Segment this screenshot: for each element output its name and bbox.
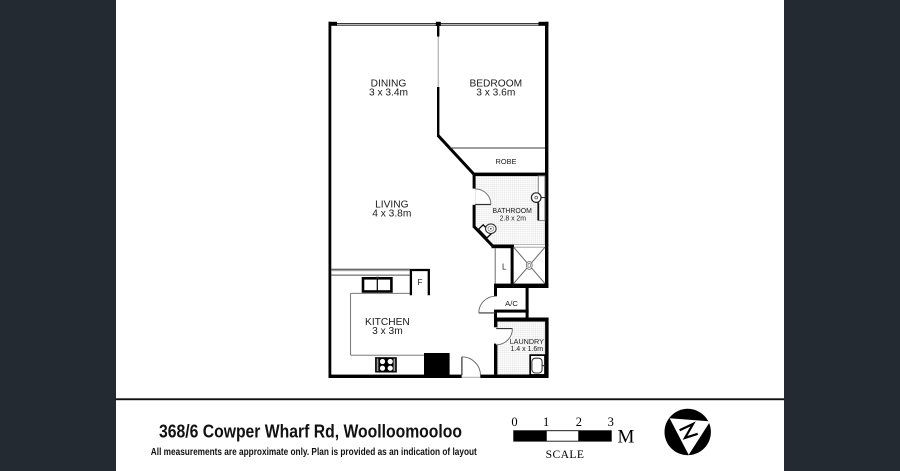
svg-text:F: F (417, 278, 422, 287)
svg-text:ROBE: ROBE (496, 157, 517, 166)
svg-text:All measurements are approxima: All measurements are approximate only. P… (151, 447, 478, 458)
svg-text:A/C: A/C (505, 299, 518, 308)
svg-text:LAUNDRY: LAUNDRY (510, 337, 544, 346)
svg-text:SCALE: SCALE (546, 448, 585, 461)
svg-text:M: M (618, 427, 635, 448)
svg-text:1.4 x 1.6m: 1.4 x 1.6m (510, 346, 543, 353)
svg-text:3 x 3.4m: 3 x 3.4m (369, 87, 408, 98)
svg-text:2: 2 (576, 415, 582, 429)
svg-text:2.8 x 2m: 2.8 x 2m (500, 215, 527, 222)
svg-text:3 x 3.6m: 3 x 3.6m (476, 87, 515, 98)
svg-text:L: L (502, 263, 507, 272)
svg-text:4 x 3.8m: 4 x 3.8m (372, 208, 411, 219)
svg-text:1: 1 (543, 415, 549, 429)
svg-text:3 x 3m: 3 x 3m (372, 326, 403, 337)
svg-text:BATHROOM: BATHROOM (493, 208, 533, 215)
svg-text:3: 3 (608, 415, 614, 429)
svg-text:368/6 Cowper Wharf Rd, Woolloo: 368/6 Cowper Wharf Rd, Woolloomooloo (159, 421, 462, 442)
svg-text:0: 0 (511, 415, 517, 429)
